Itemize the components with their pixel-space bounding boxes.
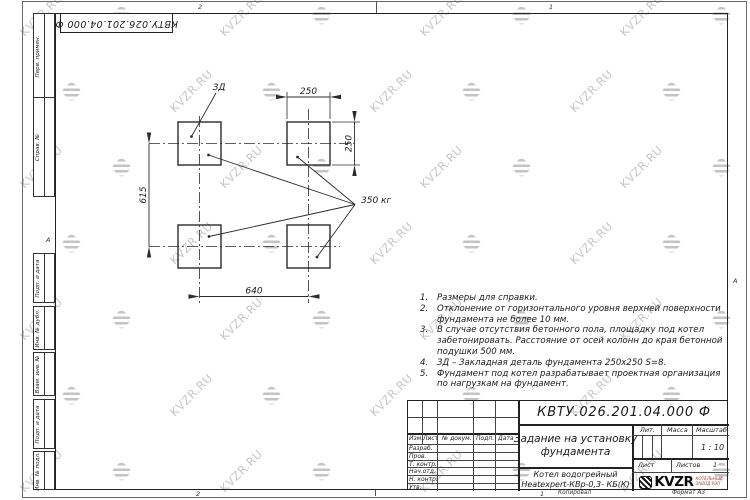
dimension-lines	[149, 97, 355, 297]
col-dokum: № докум.	[442, 435, 472, 442]
kvzr-logo-word: KVZR	[654, 474, 693, 490]
kvzr-logo-subtext: КОТЕЛЬНЫЙ ЗАВОД РЭП	[695, 477, 722, 486]
drawing-sheet: KVZR.RUKVZR.RUKVZR.RUKVZR.RUKVZR.RUKVZR.…	[0, 0, 750, 500]
note-item: 4.ЗД – Закладная деталь фундамента 250х2…	[420, 358, 732, 369]
zone-mark-top-left: 2	[198, 3, 202, 11]
col-izm: Изм.	[409, 435, 423, 442]
zd-label: ЗД	[213, 83, 226, 93]
dim-bottom-640: 640	[245, 287, 262, 297]
zone-tick-bottom	[375, 490, 376, 496]
row-prov: Пров.	[409, 453, 426, 460]
doc-number-rotated: КВТУ.026.201.04.000 Ф	[55, 18, 178, 29]
zone-mark-top-right: 1	[549, 3, 553, 11]
note-item: 2.Отклонение от горизонтального уровня в…	[420, 304, 732, 326]
sheet-label: Лист	[638, 461, 654, 469]
sheets-label: Листов	[676, 461, 700, 469]
note-item: 5.Фундамент под котел разрабатывает прое…	[420, 369, 732, 391]
lit-label: Лит.	[640, 426, 655, 434]
tb-doc-number: КВТУ.026.201.04.000 Ф	[519, 401, 729, 424]
row-razrab: Разраб.	[409, 445, 433, 452]
col-podp: Подп.	[476, 435, 494, 442]
row-utv: Утв.	[409, 484, 422, 491]
margin-box-podp-data-1: Подп. и дата	[33, 253, 55, 303]
zone-tick-top	[376, 1, 377, 13]
margin-box-inv-podl: Инв. № подл.	[33, 451, 55, 490]
mass-label: Масса	[667, 426, 688, 434]
dim-left-615: 615	[139, 186, 149, 203]
zone-mark-bottom-left: 2	[196, 490, 200, 498]
note-item: 3.В случае отсутствия бетонного пола, пл…	[420, 325, 732, 357]
row-nkontr: Н. контр.	[409, 476, 438, 483]
margin-box-perv-primen: Перв. примен.	[33, 13, 55, 98]
margin-box-podp-data-2: Подп. и дата	[33, 399, 55, 449]
load-label: 350 кг	[361, 196, 391, 206]
title-block: Изм. Лист № докум. Подп. Дата Разраб. Пр…	[407, 400, 728, 490]
company-logo: KVZR КОТЕЛЬНЫЙ ЗАВОД РЭП	[633, 473, 729, 491]
scale-label: Масштаб	[696, 426, 727, 434]
col-data: Дата	[498, 435, 514, 442]
zone-mark-right: А	[733, 277, 737, 285]
leader-dots	[190, 135, 318, 258]
row-tkontr: Т. контр.	[409, 461, 437, 468]
dim-top-250: 250	[300, 87, 317, 97]
margin-box-sprav-no: Справ. №	[33, 97, 55, 197]
margin-box-vzam-inv: Взам. инв. №	[33, 352, 55, 396]
centerlines	[149, 109, 358, 303]
scale-value: 1 : 10	[701, 443, 724, 452]
extension-lines	[287, 92, 360, 165]
notes-list: 1.Размеры для справки. 2.Отклонение от г…	[420, 293, 732, 390]
dim-right-250: 250	[345, 135, 355, 152]
row-nachotd: Нач.отд.	[409, 468, 436, 475]
sheets-value: 1	[713, 461, 717, 469]
tb-title: Задание на установку фундамента	[519, 424, 632, 468]
col-list: Лист	[423, 435, 438, 442]
zone-mark-left: А	[46, 236, 50, 244]
tb-product: Котел водогрейный Heatexpert-КВр-0,3- КБ…	[519, 468, 632, 491]
margin-box-inv-dubl: Инв. № дубл.	[33, 306, 55, 350]
zone-mark-bottom-right: 1	[540, 490, 544, 498]
doc-number-rotated-box: КВТУ.026.201.04.000 Ф	[60, 13, 173, 33]
note-item: 1.Размеры для справки.	[420, 293, 732, 304]
kvzr-logo-icon	[639, 476, 652, 489]
